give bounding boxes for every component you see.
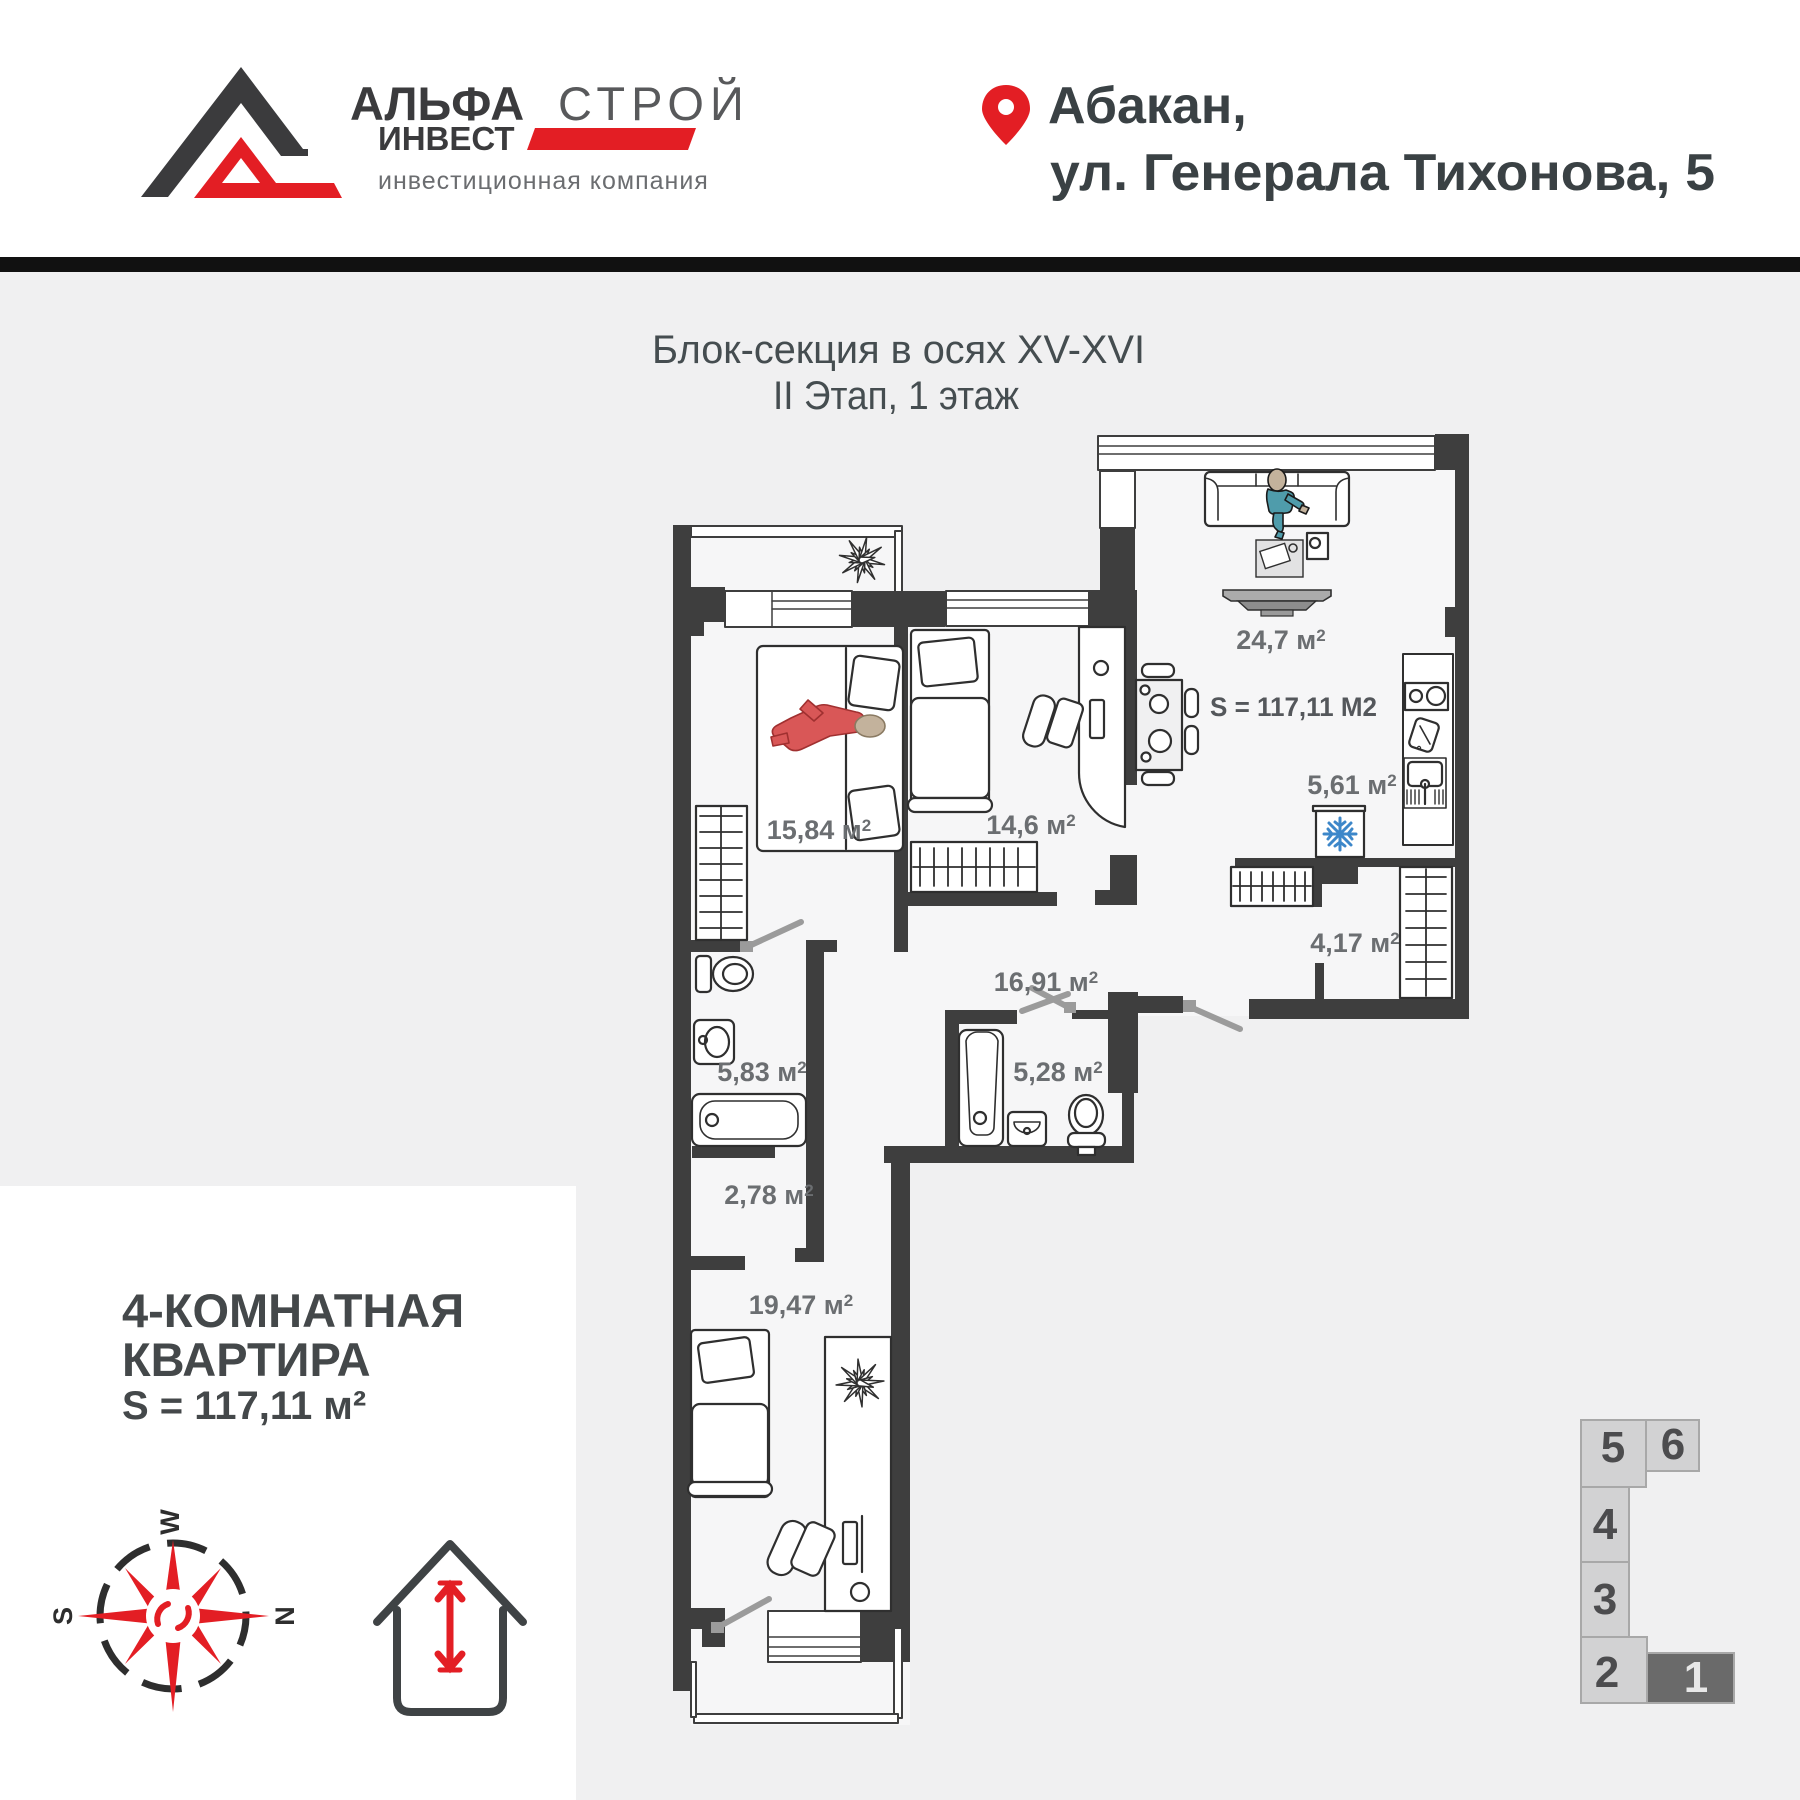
svg-text:3: 3 bbox=[1593, 1575, 1617, 1624]
svg-text:5,28 м2: 5,28 м2 bbox=[1013, 1057, 1103, 1087]
svg-text:2,78 м2: 2,78 м2 bbox=[724, 1180, 814, 1210]
svg-text:W: W bbox=[155, 1509, 185, 1535]
svg-text:14,6 м2: 14,6 м2 bbox=[986, 810, 1076, 840]
svg-text:II Этап, 1 этаж: II Этап, 1 этаж bbox=[773, 374, 1019, 418]
svg-text:ИНВЕСТ: ИНВЕСТ bbox=[378, 120, 515, 157]
svg-text:Блок-секция в осях XV-XVI: Блок-секция в осях XV-XVI bbox=[652, 328, 1145, 372]
svg-text:24,7 м2: 24,7 м2 bbox=[1236, 625, 1326, 655]
svg-text:16,91 м2: 16,91 м2 bbox=[994, 967, 1099, 997]
svg-text:6: 6 bbox=[1661, 1420, 1685, 1469]
svg-text:15,84 м2: 15,84 м2 bbox=[767, 815, 872, 845]
svg-text:S = 117,11 М2: S = 117,11 М2 bbox=[1210, 692, 1377, 722]
svg-text:5,61 м2: 5,61 м2 bbox=[1307, 770, 1397, 800]
svg-text:S = 117,11 м²: S = 117,11 м² bbox=[122, 1384, 366, 1428]
svg-text:S: S bbox=[48, 1607, 78, 1625]
svg-text:Абакан,: Абакан, bbox=[1048, 77, 1247, 135]
svg-text:инвестиционная компания: инвестиционная компания bbox=[378, 167, 709, 195]
svg-text:СТРОЙ: СТРОЙ bbox=[558, 77, 750, 130]
svg-text:N: N bbox=[270, 1606, 300, 1626]
svg-text:1: 1 bbox=[1684, 1653, 1708, 1702]
svg-text:5: 5 bbox=[1601, 1423, 1625, 1472]
svg-text:4-КОМНАТНАЯ: 4-КОМНАТНАЯ bbox=[122, 1284, 464, 1337]
svg-text:4,17 м2: 4,17 м2 bbox=[1310, 928, 1400, 958]
svg-text:5,83 м2: 5,83 м2 bbox=[717, 1057, 807, 1087]
svg-text:19,47 м2: 19,47 м2 bbox=[749, 1290, 854, 1320]
svg-text:4: 4 bbox=[1593, 1500, 1618, 1549]
svg-text:КВАРТИРА: КВАРТИРА bbox=[122, 1333, 371, 1386]
svg-text:ул. Генерала Тихонова, 5: ул. Генерала Тихонова, 5 bbox=[1050, 144, 1715, 202]
svg-text:2: 2 bbox=[1595, 1648, 1619, 1697]
